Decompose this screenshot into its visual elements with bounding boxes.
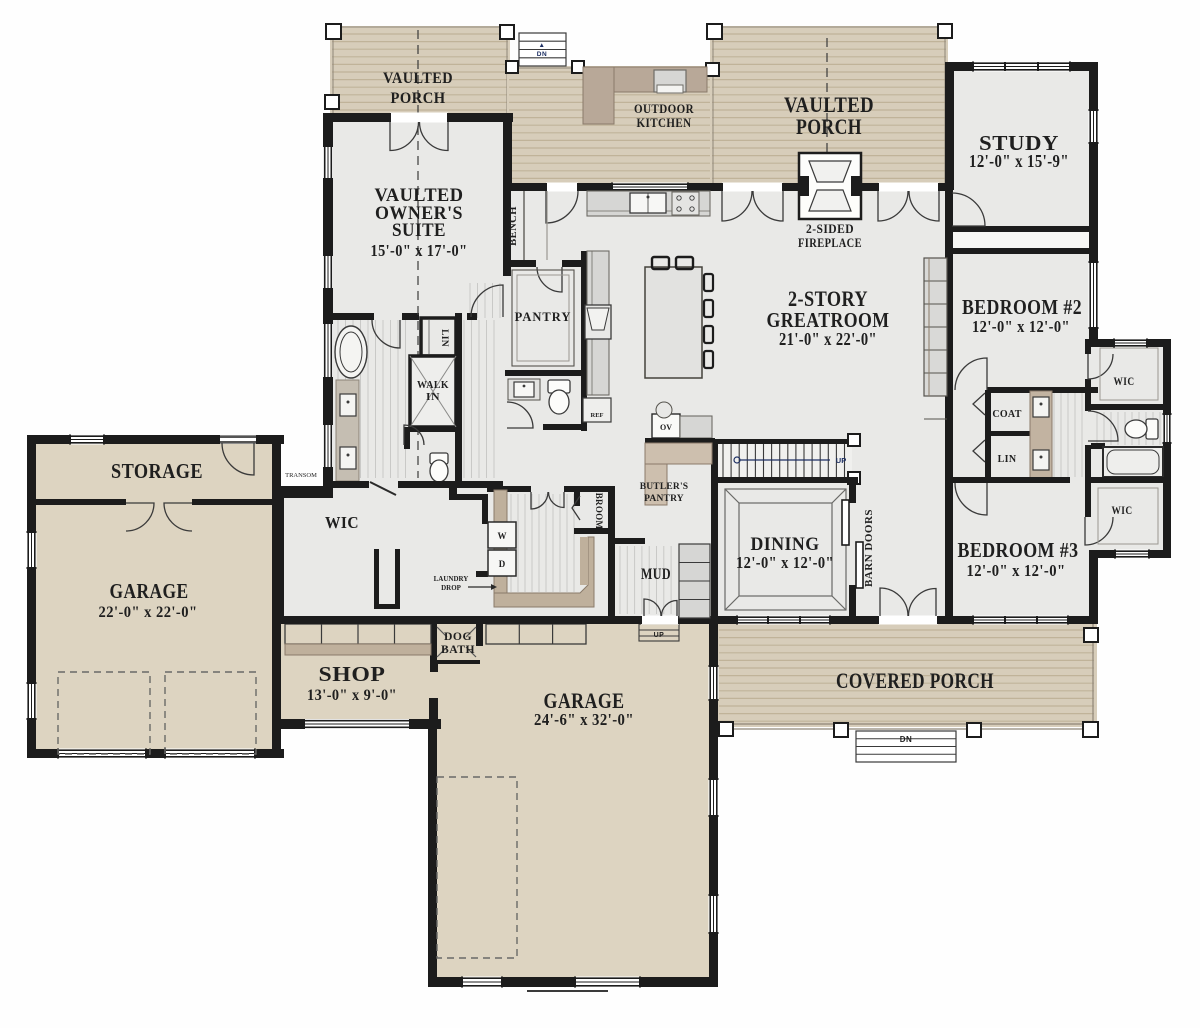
svg-text:DN: DN xyxy=(900,735,913,744)
svg-text:PORCH: PORCH xyxy=(391,90,446,107)
svg-text:BEDROOM #2: BEDROOM #2 xyxy=(962,295,1082,319)
svg-text:STORAGE: STORAGE xyxy=(111,459,203,483)
svg-text:OUTDOOR: OUTDOOR xyxy=(634,101,694,116)
svg-text:BENCH: BENCH xyxy=(508,206,519,246)
svg-text:PORCH: PORCH xyxy=(796,114,862,139)
svg-text:WIC: WIC xyxy=(1114,376,1135,388)
svg-text:WIC: WIC xyxy=(325,513,359,532)
svg-text:12'-0" x 15'-9": 12'-0" x 15'-9" xyxy=(969,151,1069,171)
svg-text:REF: REF xyxy=(591,412,604,419)
svg-text:COAT: COAT xyxy=(992,409,1021,420)
svg-text:WIC: WIC xyxy=(1112,505,1133,517)
svg-text:DINING: DINING xyxy=(751,534,820,555)
svg-text:TRANSOM: TRANSOM xyxy=(285,472,317,479)
svg-text:12'-0" x 12'-0": 12'-0" x 12'-0" xyxy=(972,317,1070,336)
svg-text:VAULTED: VAULTED xyxy=(383,70,453,87)
svg-text:BUTLER'S: BUTLER'S xyxy=(640,482,689,492)
svg-text:DN: DN xyxy=(537,51,547,58)
svg-text:22'-0" x 22'-0": 22'-0" x 22'-0" xyxy=(99,603,198,621)
svg-text:SUITE: SUITE xyxy=(392,220,446,241)
svg-text:BATH: BATH xyxy=(441,642,475,656)
svg-text:GARAGE: GARAGE xyxy=(110,579,189,603)
svg-text:MUD: MUD xyxy=(641,566,671,583)
svg-text:FIREPLACE: FIREPLACE xyxy=(798,235,862,250)
svg-text:15'-0" x 17'-0": 15'-0" x 17'-0" xyxy=(371,241,468,260)
svg-text:24'-6" x 32'-0": 24'-6" x 32'-0" xyxy=(534,710,634,729)
svg-text:LIN: LIN xyxy=(998,454,1017,465)
svg-text:12'-0" x 12'-0": 12'-0" x 12'-0" xyxy=(967,561,1066,580)
svg-text:KITCHEN: KITCHEN xyxy=(637,115,692,130)
svg-text:PANTRY: PANTRY xyxy=(515,310,572,324)
svg-text:PANTRY: PANTRY xyxy=(644,494,684,504)
svg-text:13'-0" x 9'-0": 13'-0" x 9'-0" xyxy=(307,687,397,704)
svg-text:LIN: LIN xyxy=(439,329,449,347)
svg-text:BEDROOM #3: BEDROOM #3 xyxy=(958,538,1079,562)
svg-text:OV: OV xyxy=(660,423,672,432)
svg-text:BROOM: BROOM xyxy=(594,493,604,530)
svg-text:DOG: DOG xyxy=(444,629,472,643)
svg-text:2-SIDED: 2-SIDED xyxy=(806,221,854,236)
svg-text:LAUNDRY: LAUNDRY xyxy=(434,575,469,583)
svg-text:UP: UP xyxy=(654,632,665,639)
svg-text:COVERED PORCH: COVERED PORCH xyxy=(836,668,994,693)
svg-text:DROP: DROP xyxy=(441,584,462,592)
svg-text:SHOP: SHOP xyxy=(319,662,386,686)
svg-text:W: W xyxy=(498,531,507,541)
svg-text:12'-0" x 12'-0": 12'-0" x 12'-0" xyxy=(736,553,834,572)
svg-text:21'-0" x 22'-0": 21'-0" x 22'-0" xyxy=(779,329,877,349)
svg-text:D: D xyxy=(499,559,506,569)
svg-text:▲: ▲ xyxy=(539,42,546,49)
svg-text:UP: UP xyxy=(836,456,846,465)
svg-text:WALK: WALK xyxy=(417,380,449,391)
svg-text:BARN DOORS: BARN DOORS xyxy=(863,509,875,587)
svg-text:IN: IN xyxy=(426,392,440,403)
